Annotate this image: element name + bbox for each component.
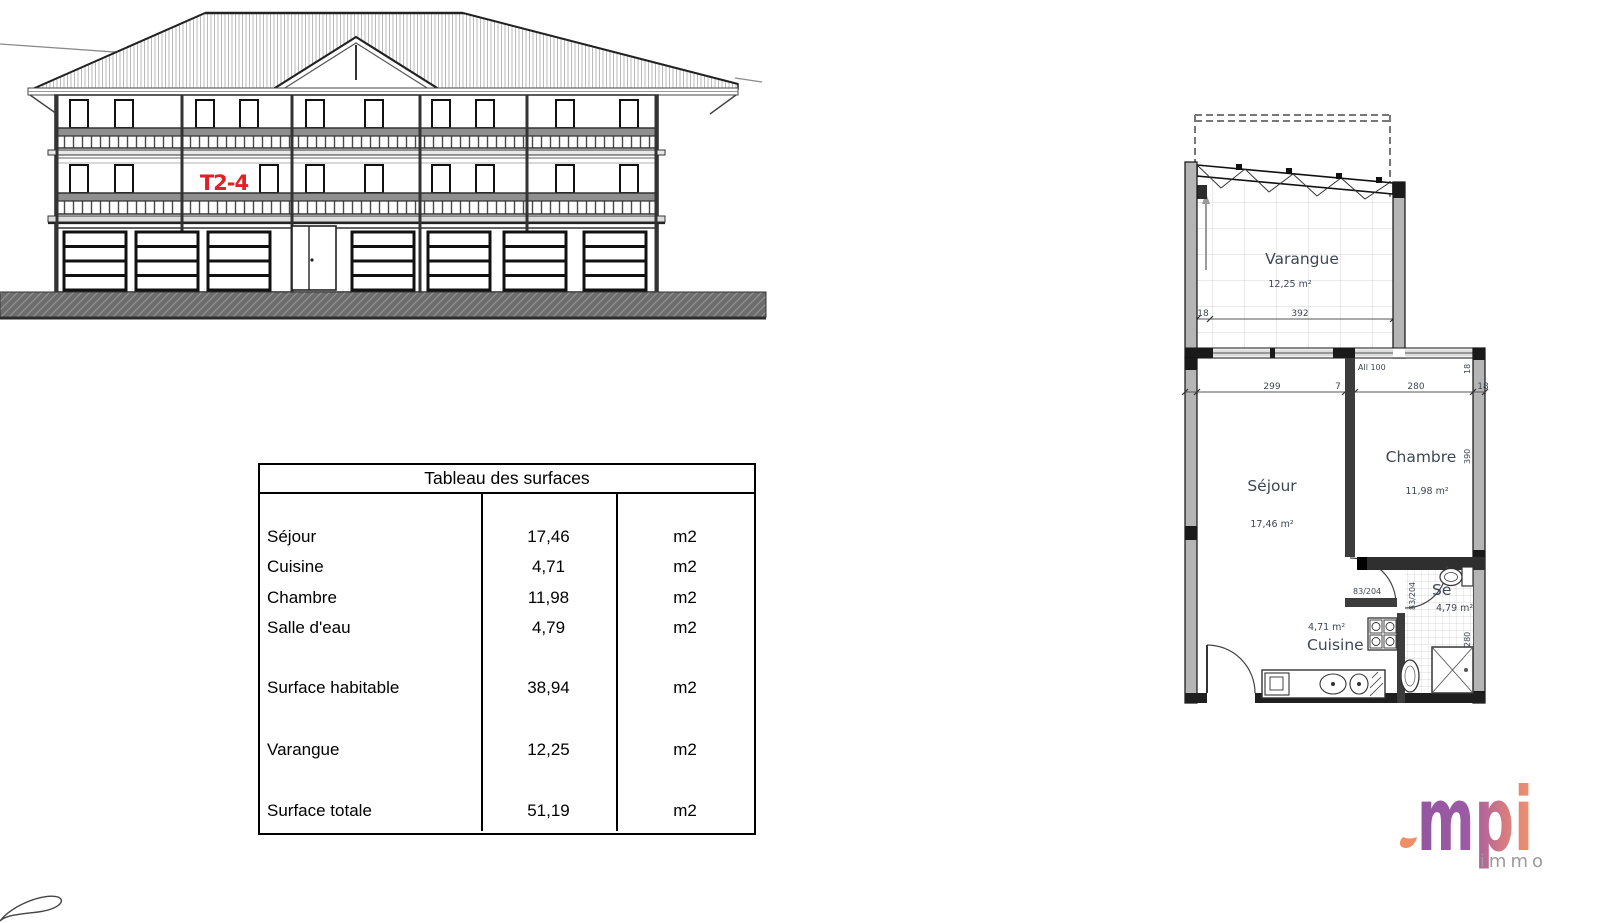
row-value: 4,71 [481,552,616,582]
hall-wall [1345,598,1397,607]
garage-doors [64,232,646,290]
row-label: Salle d'eau [267,613,477,643]
sejour-area: 17,46 m² [1250,519,1293,530]
surface-row-totale: Surface totale 51,19 m2 [260,796,754,826]
right-wall [1473,348,1485,703]
wall-cap [1393,182,1405,198]
surface-row-chambre: Chambre 11,98 m2 [260,583,754,613]
dim-salle-eau-depth: 280 [1463,632,1472,647]
surface-row-varangue: Varangue 12,25 m2 [260,735,754,765]
chambre-room: Chambre 11,98 m² 390 [1386,448,1472,497]
row-value: 38,94 [481,673,616,703]
dim-chambre-width: 280 [1407,382,1424,392]
salle-eau-area: 4,79 m² [1436,603,1473,614]
varangue-room: Varangue 12,25 m² 18 392 [1185,162,1405,358]
chambre-label: Chambre [1386,448,1457,466]
unit-label: T2-4 [200,171,249,195]
logo-comma [1400,837,1417,848]
building-elevation: T2-4 [0,0,770,325]
varangue-area: 12,25 m² [1268,279,1311,290]
row-value: 17,46 [481,522,616,552]
row-unit: m2 [618,613,752,643]
sejour-room: Séjour 17,46 m² [1247,477,1297,530]
row-unit: m2 [618,673,752,703]
row-label: Chambre [267,583,477,613]
shower [1432,647,1473,693]
signature-mark [0,885,90,923]
row-value: 51,19 [481,796,616,826]
varangue-left-wall [1185,162,1197,358]
row-label: Surface habitable [267,673,477,703]
row-unit: m2 [618,552,752,582]
level1-balustrade [57,193,656,214]
dim-right-wall: 18 [1477,382,1489,392]
surface-row-habitable: Surface habitable 38,94 m2 [260,673,754,703]
se-left-wall [1397,613,1405,703]
row-label: Surface totale [267,796,477,826]
cuisine-label: Cuisine [1307,636,1364,654]
level2-balustrade [57,128,656,148]
surface-table-body: Séjour 17,46 m2 Cuisine 4,71 m2 Chambre … [260,494,754,831]
ground-strip [0,292,766,319]
dim-partition: 7 [1335,382,1341,392]
surface-row-sejour: Séjour 17,46 m2 [260,522,754,552]
dim-varangue-width: 392 [1291,309,1308,319]
washbasin [1401,660,1419,692]
allege-label: All 100 [1358,363,1386,372]
dim-sejour-width: 299 [1263,382,1280,392]
row-unit: m2 [618,522,752,552]
cuisine-room: 4,71 m² Cuisine [1262,618,1397,698]
row-value: 4,79 [481,613,616,643]
entry-door-plan [1207,645,1255,693]
surface-table-title: Tableau des surfaces [260,465,754,494]
page: { "elevation": { "unit_label": "T2-4", "… [0,0,1600,923]
row-label: Séjour [267,522,477,552]
mpi-logo: mpi immo [1372,770,1552,875]
bottom-wall [1185,693,1207,703]
dim-varangue-wall: 18 [1197,309,1209,319]
surface-table: Tableau des surfaces Séjour 17,46 m2 Cui… [258,463,756,835]
toilet [1440,567,1473,586]
cuisine-area: 4,71 m² [1308,622,1345,633]
main-dim-line: 299 7 280 18 [1182,382,1489,395]
varangue-right-wall [1393,182,1405,358]
stove [1368,618,1397,650]
row-label: Varangue [267,735,477,765]
floor-plan: Varangue 12,25 m² 18 392 [1148,98,1500,713]
facade: T2-4 [48,95,665,292]
door-label-sejour: 83/204 [1353,587,1381,596]
row-value: 12,25 [481,735,616,765]
row-value: 11,98 [481,583,616,613]
row-unit: m2 [618,735,752,765]
sejour-label: Séjour [1247,477,1297,495]
chambre-area: 11,98 m² [1405,486,1448,497]
surface-row-salle-eau: Salle d'eau 4,79 m2 [260,613,754,643]
dim-top-right-vert: 18 [1463,364,1472,374]
row-unit: m2 [618,796,752,826]
row-label: Cuisine [267,552,477,582]
kitchen-counter [1262,670,1385,698]
dim-chambre-depth: 390 [1463,449,1472,464]
row-unit: m2 [618,583,752,613]
entry-door [292,226,336,290]
logo-subtext: immo [1480,851,1547,872]
door-label-salle-eau: 83/204 [1408,582,1417,610]
varangue-label: Varangue [1265,250,1339,268]
surface-row-cuisine: Cuisine 4,71 m2 [260,552,754,582]
